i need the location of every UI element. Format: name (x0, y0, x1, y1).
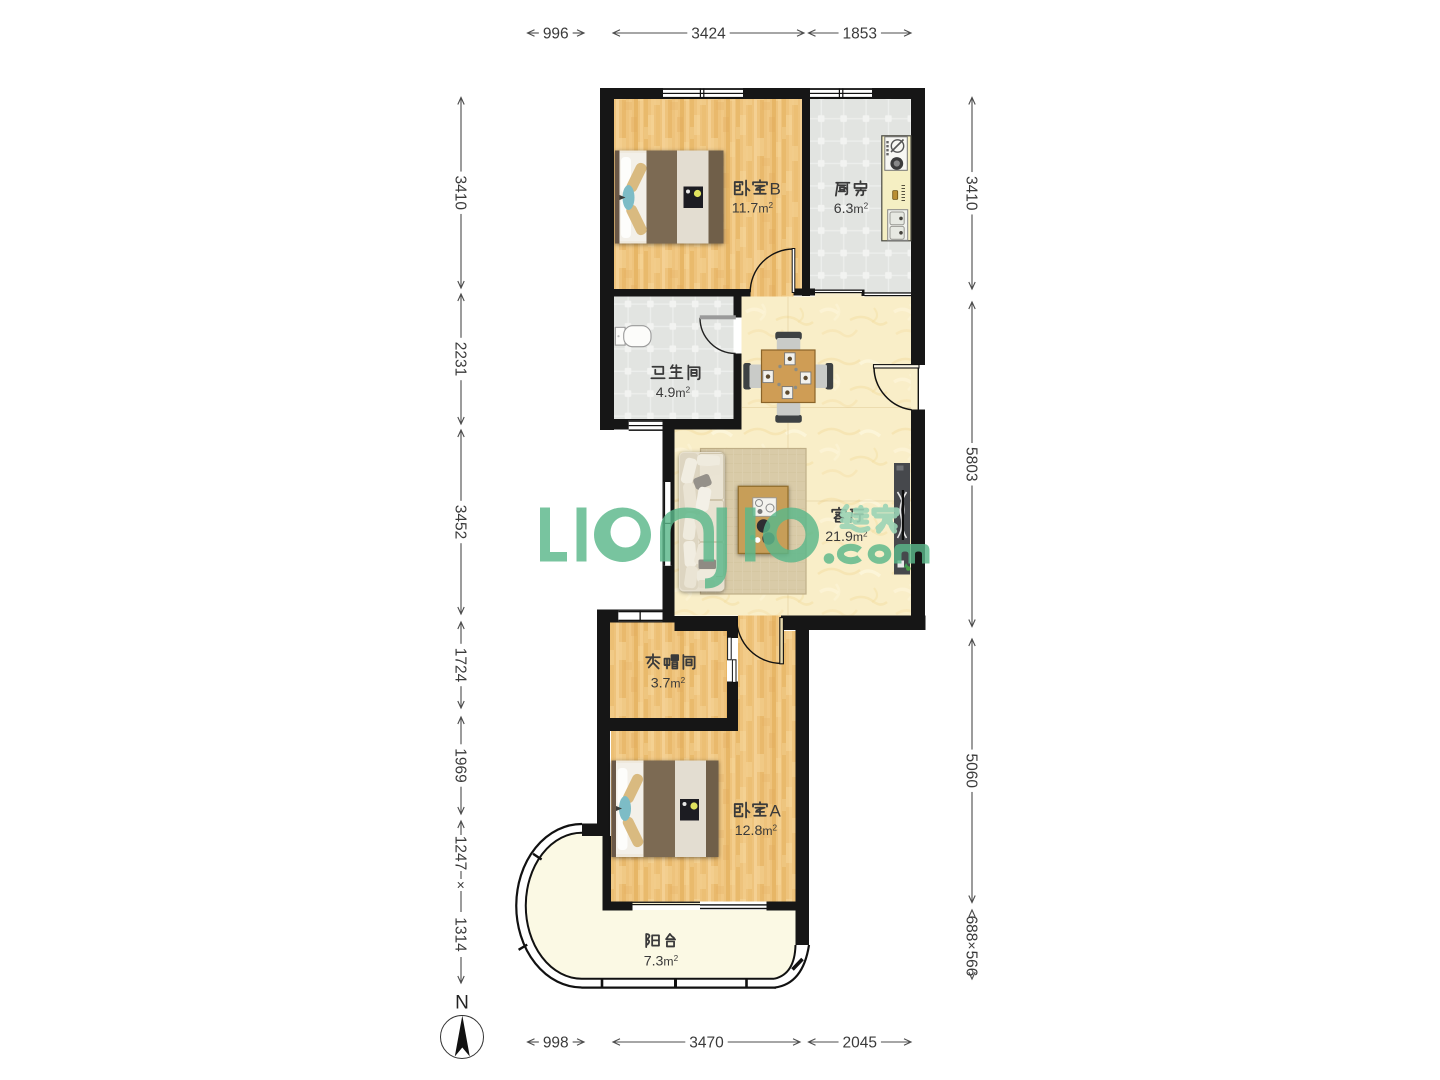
svg-text:1247: 1247 (452, 836, 469, 870)
svg-text:1853: 1853 (843, 26, 877, 43)
svg-text:5803: 5803 (963, 447, 980, 481)
svg-text:2231: 2231 (452, 342, 469, 376)
svg-text:2045: 2045 (843, 1035, 877, 1052)
svg-text:3452: 3452 (452, 505, 469, 539)
svg-text:12.8m2: 12.8m2 (735, 823, 778, 839)
svg-text:3470: 3470 (689, 1035, 724, 1052)
svg-text:3410: 3410 (452, 176, 469, 211)
svg-text:3.7m2: 3.7m2 (651, 676, 686, 692)
svg-text:×: × (453, 881, 469, 889)
svg-text:1314: 1314 (452, 917, 469, 952)
svg-text:4.9m2: 4.9m2 (656, 385, 691, 401)
svg-text:688: 688 (963, 916, 980, 942)
svg-text:566: 566 (963, 951, 980, 977)
svg-text:1724: 1724 (452, 648, 469, 683)
svg-text:N: N (455, 993, 469, 1014)
svg-text:6.3m2: 6.3m2 (834, 201, 869, 217)
svg-text:3424: 3424 (691, 26, 726, 43)
svg-text:3410: 3410 (963, 176, 980, 211)
svg-text:5060: 5060 (963, 754, 980, 789)
svg-text:998: 998 (543, 1035, 569, 1052)
svg-text:×: × (964, 941, 980, 949)
svg-text:1969: 1969 (452, 748, 469, 782)
svg-text:996: 996 (543, 26, 569, 43)
svg-text:7.3m2: 7.3m2 (644, 954, 679, 970)
svg-text:A: A (770, 801, 782, 820)
svg-text:B: B (770, 179, 781, 198)
svg-text:11.7m2: 11.7m2 (732, 201, 774, 217)
